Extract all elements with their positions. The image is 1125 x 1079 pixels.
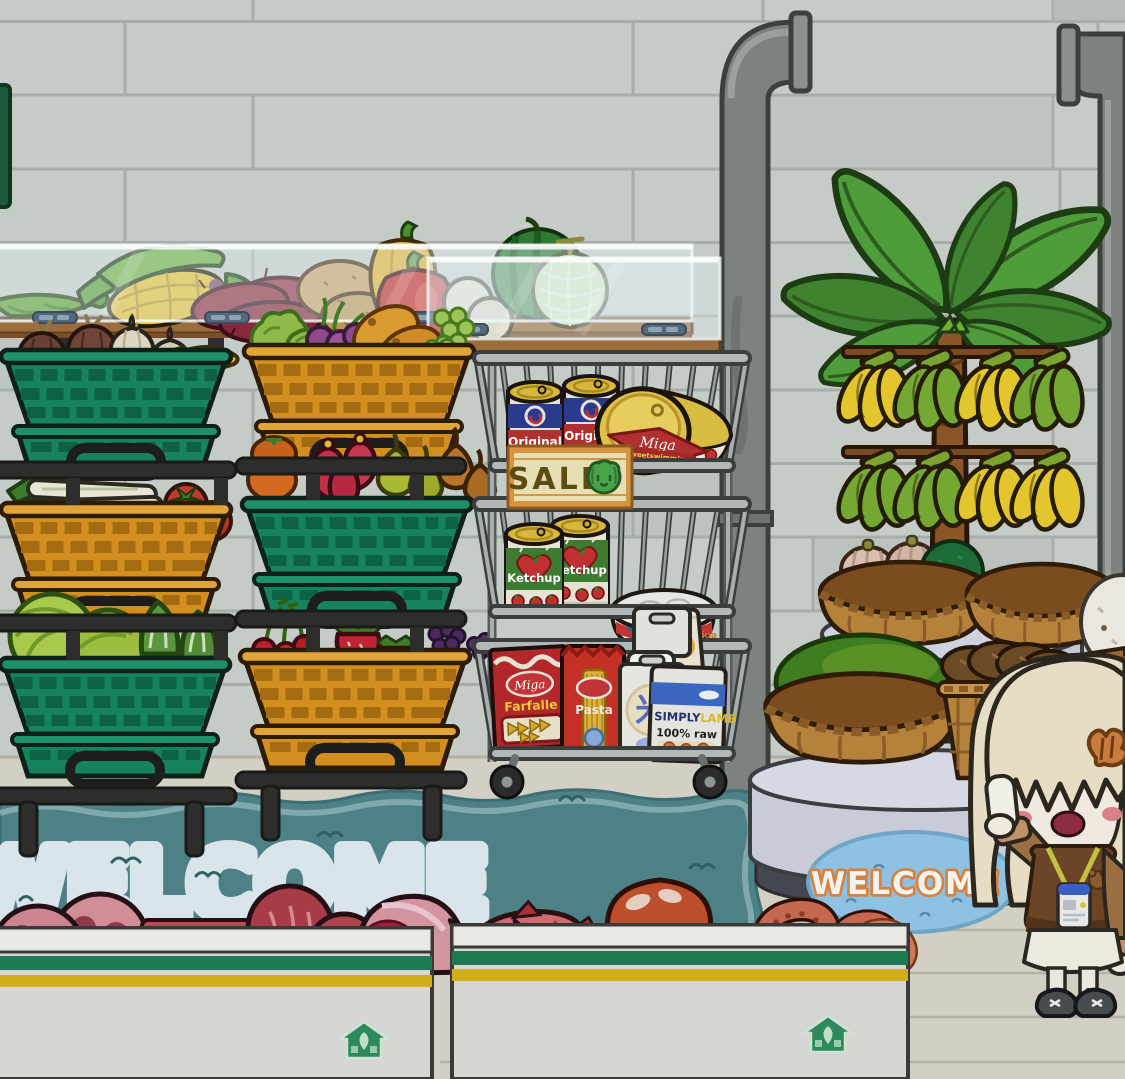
grocery-store-scene: Original Baked beans Ketchup	[0, 0, 1125, 1079]
lamb-sublabel: 100% raw	[656, 726, 717, 741]
character-mouth	[1052, 812, 1084, 836]
shelf-unit-left	[0, 316, 238, 856]
farfalle-box[interactable]: Miga Farfalle	[490, 646, 571, 750]
pasta-bag[interactable]: Pasta	[562, 646, 624, 758]
character-hand	[986, 815, 1014, 837]
hair-clip	[1089, 730, 1125, 766]
id-badge[interactable]	[1058, 884, 1090, 928]
melon-basket[interactable]	[766, 635, 958, 762]
farfalle-label: Farfalle	[504, 697, 558, 715]
lamb-brand: SIMPLY	[654, 709, 701, 725]
sale-sign[interactable]: SALE	[508, 446, 632, 508]
cart-wheel	[491, 766, 523, 798]
lamb-type: LAMB	[700, 711, 737, 726]
ketchup-cans[interactable]	[506, 516, 608, 614]
price-tag	[33, 312, 77, 323]
rice-bag-back[interactable]	[634, 608, 690, 656]
pasta-label: Pasta	[575, 703, 613, 717]
cabbage-face-icon	[588, 461, 620, 493]
farfalle-brand: Miga	[513, 677, 546, 693]
character-skirt	[1024, 930, 1122, 972]
wall-sign-edge	[0, 85, 10, 207]
cart-wheel	[694, 766, 726, 798]
